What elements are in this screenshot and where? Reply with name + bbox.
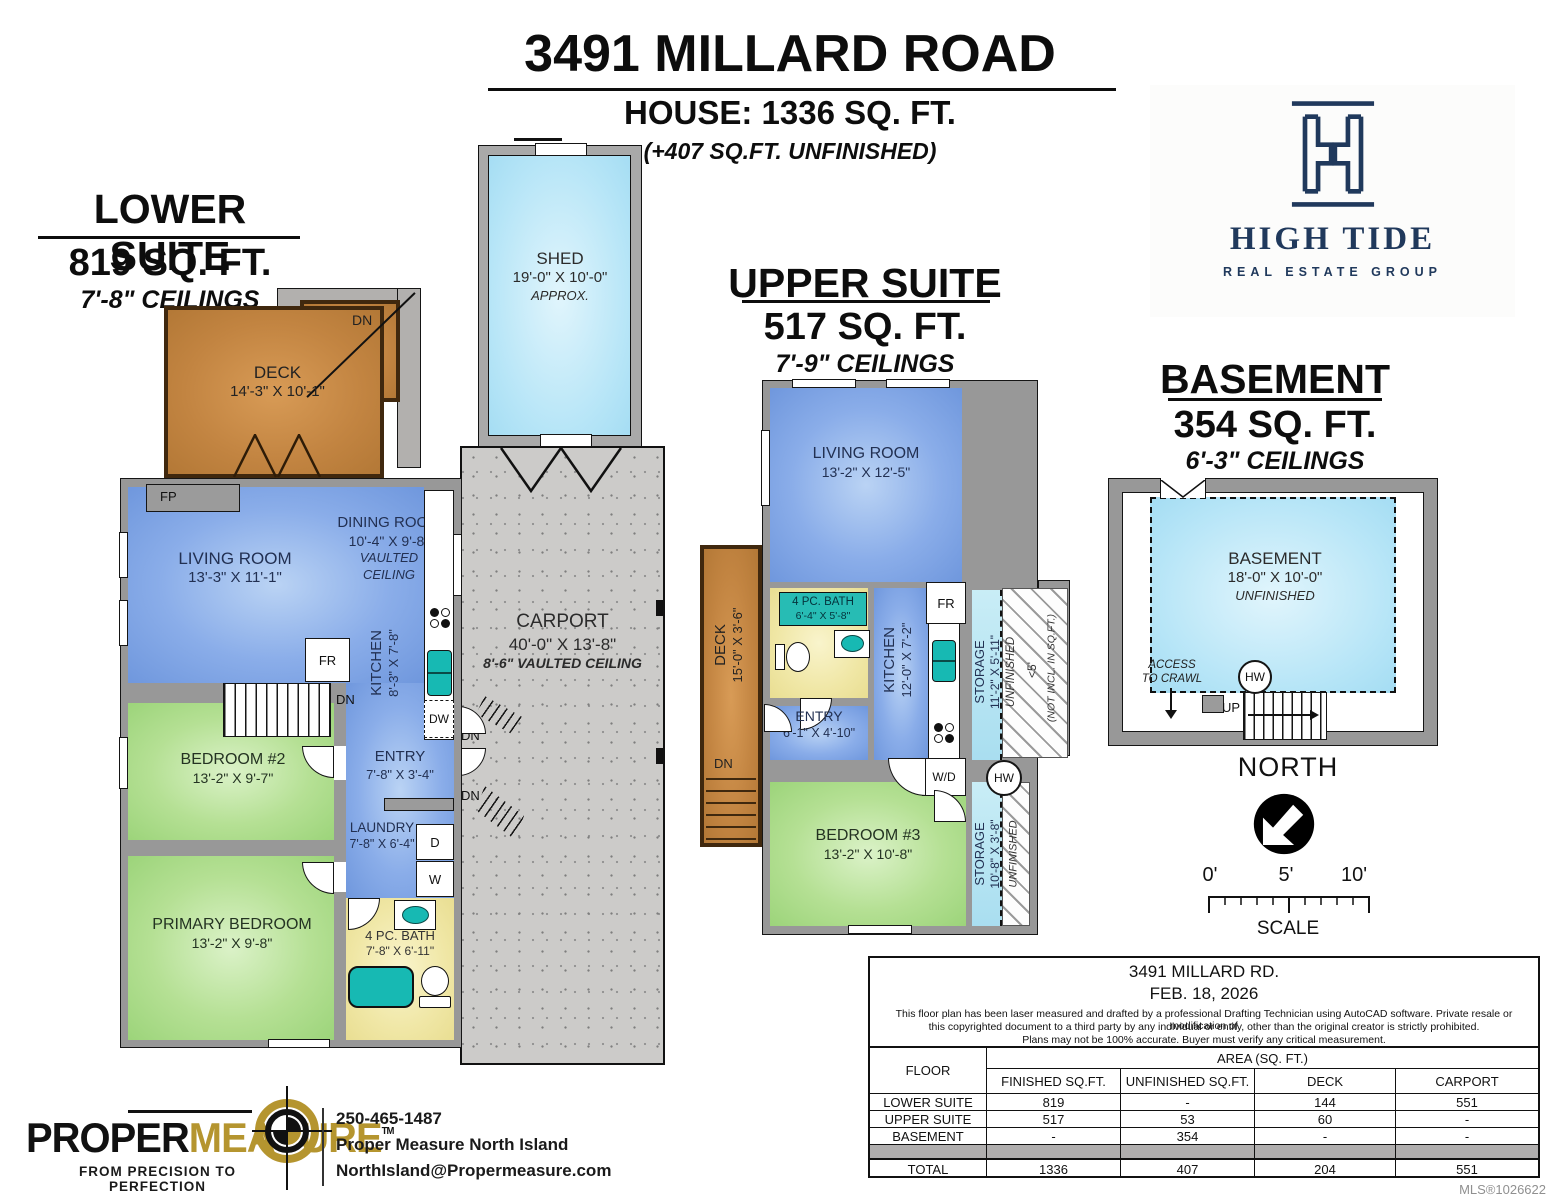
high-tide-monogram-icon xyxy=(1277,95,1389,213)
shed-door-gap-top xyxy=(535,143,587,156)
upper-storage2-dims: 10'-8" X 3'-8" xyxy=(988,819,1002,888)
row-upper-deck: 60 xyxy=(1255,1111,1396,1128)
lower-laundry-dims: 7'-8" X 6'-4" xyxy=(340,837,424,853)
table-date: FEB. 18, 2026 xyxy=(870,984,1538,1004)
dishwasher: DW xyxy=(424,700,454,738)
washer-label: W xyxy=(429,872,441,887)
carport-post-2 xyxy=(656,748,663,764)
carport xyxy=(460,446,665,1065)
lower-bath-dims: 7'-8" X 6'-11" xyxy=(352,944,448,959)
upper-living-label: LIVING ROOM 13'-2" X 12'-5" xyxy=(780,444,952,482)
washer: W xyxy=(416,861,454,897)
bedroom2-door-gap xyxy=(334,746,346,780)
brand-overline xyxy=(128,1110,252,1113)
upper-living-name: LIVING ROOM xyxy=(780,444,952,464)
upper-living-dims: 13'-2" X 12'-5" xyxy=(780,464,952,482)
contact-company: Proper Measure North Island xyxy=(336,1132,611,1158)
row-upper-floor: UPPER SUITE xyxy=(870,1111,987,1128)
basement-door-swing-icon xyxy=(1160,480,1206,498)
basement-room-note: UNFINISHED xyxy=(1180,588,1370,604)
lower-primary-dims: 13'-2" X 9'-8" xyxy=(130,935,334,953)
row-lower-floor: LOWER SUITE xyxy=(870,1094,987,1111)
basement-area: 354 SQ. FT. xyxy=(1130,404,1420,447)
row-lower-unfinished: - xyxy=(1121,1094,1255,1111)
lower-fridge-label: FR xyxy=(319,653,336,668)
row-upper-finished: 517 xyxy=(987,1111,1121,1128)
access-arrow-head xyxy=(1165,710,1177,719)
lower-bath-label: 4 PC. BATH 7'-8" X 6'-11" xyxy=(352,928,448,959)
upper-toilet-tank xyxy=(775,644,785,670)
access-to-crawl-label: ACCESS TO CRAWL xyxy=(1128,658,1216,687)
col-unfinished-header: UNFINISHED SQ.FT. xyxy=(1121,1069,1255,1094)
upper-toilet-icon xyxy=(786,642,810,672)
upper-living xyxy=(770,388,962,582)
upper-suite-area: 517 SQ. FT. xyxy=(720,306,1010,349)
upper-deck-dn: DN xyxy=(714,756,733,771)
shed-door-gap-bottom xyxy=(540,434,592,447)
toilet-base xyxy=(419,996,451,1008)
upper-kitchen-label: KITCHEN 12'-0" X 7'-2" xyxy=(881,623,915,698)
access-line1: ACCESS xyxy=(1128,658,1216,672)
kitchen-sink-icon xyxy=(427,650,452,696)
upper-bath-label: 4 PC. BATH 6'-4" X 5'-8" xyxy=(779,592,867,626)
basement-room-name: BASEMENT xyxy=(1180,548,1370,569)
upper-kitchen-dims: 12'-0" X 7'-2" xyxy=(899,623,915,698)
mls-number: MLS®1026622 xyxy=(1400,1182,1546,1197)
upper-bath-sink-icon xyxy=(834,630,870,658)
lower-laundry-name: LAUNDRY xyxy=(340,820,424,837)
upper-washer-dryer: W/D xyxy=(922,758,966,796)
lower-deck-name: DECK xyxy=(180,362,375,383)
upper-storage1-name: STORAGE xyxy=(972,635,988,709)
upper-hatch-note1: <5' xyxy=(1025,662,1039,678)
row-upper-carport: - xyxy=(1396,1111,1538,1128)
house-area: HOUSE: 1336 SQ. FT. xyxy=(420,94,1160,132)
carport-label: CARPORT 40'-0" X 13'-8" 8'-6" VAULTED CE… xyxy=(465,610,660,673)
basement-stairs-arrow-head xyxy=(1310,710,1319,720)
window xyxy=(886,379,950,388)
upper-storage1-dims: 11'-2" X 5'-11" xyxy=(988,635,1002,709)
upper-kitchen-sink-icon xyxy=(932,640,956,682)
upper-bath-name: 4 PC. BATH xyxy=(780,595,866,610)
basement-label: BASEMENT 18'-0" X 10'-0" UNFINISHED xyxy=(1180,548,1370,604)
toilet-icon xyxy=(421,966,449,996)
page-title: 3491 MILLARD ROAD xyxy=(420,24,1160,84)
upper-wd-label: W/D xyxy=(932,770,955,784)
lower-stairs-dn: DN xyxy=(336,692,355,707)
carport-note: 8'-6" VAULTED CEILING xyxy=(465,655,660,673)
window xyxy=(119,737,128,789)
basement-hot-water-tank: HW xyxy=(1238,660,1272,694)
entry-laundry-wall xyxy=(384,798,454,811)
basement-up-label: UP xyxy=(1222,700,1240,715)
high-tide-name: HIGH TIDE xyxy=(1150,221,1515,258)
basement-underline xyxy=(1168,398,1382,401)
window xyxy=(453,534,462,596)
brand-tagline: FROM PRECISION TO PERFECTION xyxy=(40,1164,275,1194)
upper-suite-underline xyxy=(742,300,990,303)
upper-fridge-label: FR xyxy=(937,596,954,611)
spacer-cell xyxy=(1396,1145,1538,1160)
shed-door-swing-icon xyxy=(500,447,622,493)
total-carport: 551 xyxy=(1396,1160,1538,1178)
row-lower-deck: 144 xyxy=(1255,1094,1396,1111)
basement-hw-label: HW xyxy=(1245,670,1265,684)
window xyxy=(268,1039,330,1048)
upper-stove-icon xyxy=(930,712,958,754)
upper-storage1-label: STORAGE 11'-2" X 5'-11" xyxy=(972,635,1002,709)
spacer-cell xyxy=(1255,1145,1396,1160)
lower-deck-label: DECK 14'-3" X 10'-1" xyxy=(180,362,375,402)
basement-ceilings: 6'-3" CEILINGS xyxy=(1130,447,1420,476)
lower-suite-underline xyxy=(38,236,300,239)
scale-5: 5' xyxy=(1272,864,1300,887)
upper-storage1-note: UNFINISHED xyxy=(1005,637,1019,707)
lower-kitchen-name: KITCHEN xyxy=(368,629,386,697)
upper-storage2-label: STORAGE 10'-8" X 3'-8" xyxy=(972,819,1002,888)
target-icon xyxy=(248,1086,332,1190)
window xyxy=(119,600,128,646)
access-line2: TO CRAWL xyxy=(1128,672,1216,686)
upper-suite-ceilings: 7'-9" CEILINGS xyxy=(720,350,1010,379)
upper-bedroom3-name: BEDROOM #3 xyxy=(780,826,956,846)
shed-label: SHED 19'-0" X 10'-0" APPROX. xyxy=(488,248,632,304)
upper-deck-name: DECK xyxy=(712,608,730,683)
contact-email: NorthIsland@Propermeasure.com xyxy=(336,1158,611,1184)
lower-suite-area: 819 SQ. FT. xyxy=(30,242,310,285)
contact-phone: 250-465-1487 xyxy=(336,1106,611,1132)
high-tide-logo: HIGH TIDE REAL ESTATE GROUP xyxy=(1150,85,1515,317)
upper-bedroom3-label: BEDROOM #3 13'-2" X 10'-8" xyxy=(780,826,956,864)
floor-plan-page: 3491 MILLARD ROAD HOUSE: 1336 SQ. FT. (+… xyxy=(0,0,1553,1200)
shed-dims: 19'-0" X 10'-0" xyxy=(488,269,632,288)
lower-fridge: FR xyxy=(305,638,350,682)
scale-0: 0' xyxy=(1196,864,1224,887)
col-finished-header: FINISHED SQ.FT. xyxy=(987,1069,1121,1094)
scale-bar xyxy=(1208,896,1370,914)
lower-entry-name: ENTRY xyxy=(350,748,450,767)
lower-living-dims: 13'-3" X 11'-1" xyxy=(140,569,330,588)
spacer-cell xyxy=(987,1145,1121,1160)
lower-stairs xyxy=(223,683,331,737)
upper-hw-label: HW xyxy=(994,771,1014,785)
area-grid: FLOOR AREA (SQ. FT.) FINISHED SQ.FT. UNF… xyxy=(870,1046,1538,1178)
total-floor: TOTAL xyxy=(870,1160,987,1178)
shed-note: APPROX. xyxy=(488,288,632,304)
high-tide-sub: REAL ESTATE GROUP xyxy=(1150,265,1515,279)
row-lower-finished: 819 xyxy=(987,1094,1121,1111)
total-unfinished: 407 xyxy=(1121,1160,1255,1178)
lower-living-name: LIVING ROOM xyxy=(140,548,330,569)
bathtub-icon xyxy=(348,966,414,1008)
upper-kitchen-name: KITCHEN xyxy=(881,623,899,698)
row-lower-carport: 551 xyxy=(1396,1094,1538,1111)
brand-proper: PROPER xyxy=(26,1114,189,1161)
col-floor-header: FLOOR xyxy=(870,1048,987,1094)
row-upper-unfinished: 53 xyxy=(1121,1111,1255,1128)
scale-label: SCALE xyxy=(1238,918,1338,940)
col-carport-header: CARPORT xyxy=(1396,1069,1538,1094)
window xyxy=(848,925,912,934)
carport-dims: 40'-0" X 13'-8" xyxy=(465,634,660,655)
window xyxy=(792,379,856,388)
basement-post xyxy=(1202,695,1224,713)
lower-bedroom2-name: BEDROOM #2 xyxy=(138,750,328,770)
row-basement-floor: BASEMENT xyxy=(870,1128,987,1145)
window xyxy=(119,532,128,578)
area-header: AREA (SQ. FT.) xyxy=(987,1048,1538,1069)
row-basement-carport: - xyxy=(1396,1128,1538,1145)
footer-divider xyxy=(322,1108,324,1186)
north-label: NORTH xyxy=(1208,752,1368,783)
upper-hot-water-tank: HW xyxy=(986,760,1022,796)
table-disclaimer-2: this copyrighted document to a third par… xyxy=(874,1021,1534,1033)
bath-sink-icon xyxy=(394,900,436,930)
carport-name: CARPORT xyxy=(465,610,660,634)
dryer-label: D xyxy=(430,835,439,850)
north-arrow-icon xyxy=(1252,792,1316,856)
row-basement-unfinished: 354 xyxy=(1121,1128,1255,1145)
total-deck: 204 xyxy=(1255,1160,1396,1178)
upper-hatch-note2: (NOT INCL. IN SQ.FT.) xyxy=(1046,614,1059,722)
fireplace-label: FP xyxy=(160,489,177,504)
lower-deck-dn: DN xyxy=(352,312,372,328)
total-finished: 1336 xyxy=(987,1160,1121,1178)
spacer-cell xyxy=(1121,1145,1255,1160)
upper-deck-stairs xyxy=(706,774,756,840)
upper-fridge: FR xyxy=(926,582,966,624)
contact-block: 250-465-1487 Proper Measure North Island… xyxy=(336,1106,611,1184)
info-table: 3491 MILLARD RD. FEB. 18, 2026 This floo… xyxy=(868,956,1540,1178)
title-underline xyxy=(488,88,1116,91)
upper-bedroom3-dims: 13'-2" X 10'-8" xyxy=(780,846,956,864)
upper-bath-dims: 6'-4" X 5'-8" xyxy=(780,610,866,624)
dryer: D xyxy=(416,824,454,860)
lower-kitchen-label: KITCHEN 8'-3" X 7'-8" xyxy=(368,629,402,697)
access-arrow-line xyxy=(1170,688,1172,710)
basement-title: BASEMENT xyxy=(1130,356,1420,403)
carport-post-1 xyxy=(656,600,663,616)
lower-bedroom2-label: BEDROOM #2 13'-2" X 9'-7" xyxy=(138,750,328,788)
lower-entry-label: ENTRY 7'-8" X 3'-4" xyxy=(350,748,450,783)
lower-laundry-label: LAUNDRY 7'-8" X 6'-4" xyxy=(340,820,424,853)
basement-room-dims: 18'-0" X 10'-0" xyxy=(1180,569,1370,588)
lower-entry-dims: 7'-8" X 3'-4" xyxy=(350,767,450,783)
lower-kitchen-dims: 8'-3" X 7'-8" xyxy=(386,629,402,697)
lower-primary-label: PRIMARY BEDROOM 13'-2" X 9'-8" xyxy=(130,915,334,953)
lower-living-label: LIVING ROOM 13'-3" X 11'-1" xyxy=(140,548,330,588)
window xyxy=(761,430,770,506)
lower-bath-name: 4 PC. BATH xyxy=(352,928,448,944)
stove-icon xyxy=(427,598,453,638)
spacer-cell xyxy=(870,1145,987,1160)
carport-dn-2: DN xyxy=(461,788,480,803)
lower-bedroom2-dims: 13'-2" X 9'-7" xyxy=(138,770,328,788)
primary-door-gap xyxy=(334,862,346,892)
table-address: 3491 MILLARD RD. xyxy=(870,962,1538,982)
upper-deck-dims: 15'-0" X 3'-6" xyxy=(730,608,746,683)
lower-deck-dims: 14'-3" X 10'-1" xyxy=(180,383,375,402)
lower-deck-door-swing-icon xyxy=(233,434,321,478)
upper-deck-label: DECK 15'-0" X 3'-6" xyxy=(712,608,746,683)
dishwasher-label: DW xyxy=(429,712,449,726)
shed-door-tick xyxy=(514,138,562,141)
upper-storage2-name: STORAGE xyxy=(972,819,988,888)
lower-deck-landing-strip xyxy=(397,288,421,468)
row-basement-finished: - xyxy=(987,1128,1121,1145)
basement-stairs-arrow-line xyxy=(1248,714,1312,716)
scale-10: 10' xyxy=(1334,864,1374,887)
row-basement-deck: - xyxy=(1255,1128,1396,1145)
lower-primary-name: PRIMARY BEDROOM xyxy=(130,915,334,935)
col-deck-header: DECK xyxy=(1255,1069,1396,1094)
upper-storage2-note: UNFINISHED xyxy=(1007,820,1020,887)
shed-name: SHED xyxy=(488,248,632,269)
table-disclaimer-3: Plans may not be 100% accurate. Buyer mu… xyxy=(874,1034,1534,1046)
